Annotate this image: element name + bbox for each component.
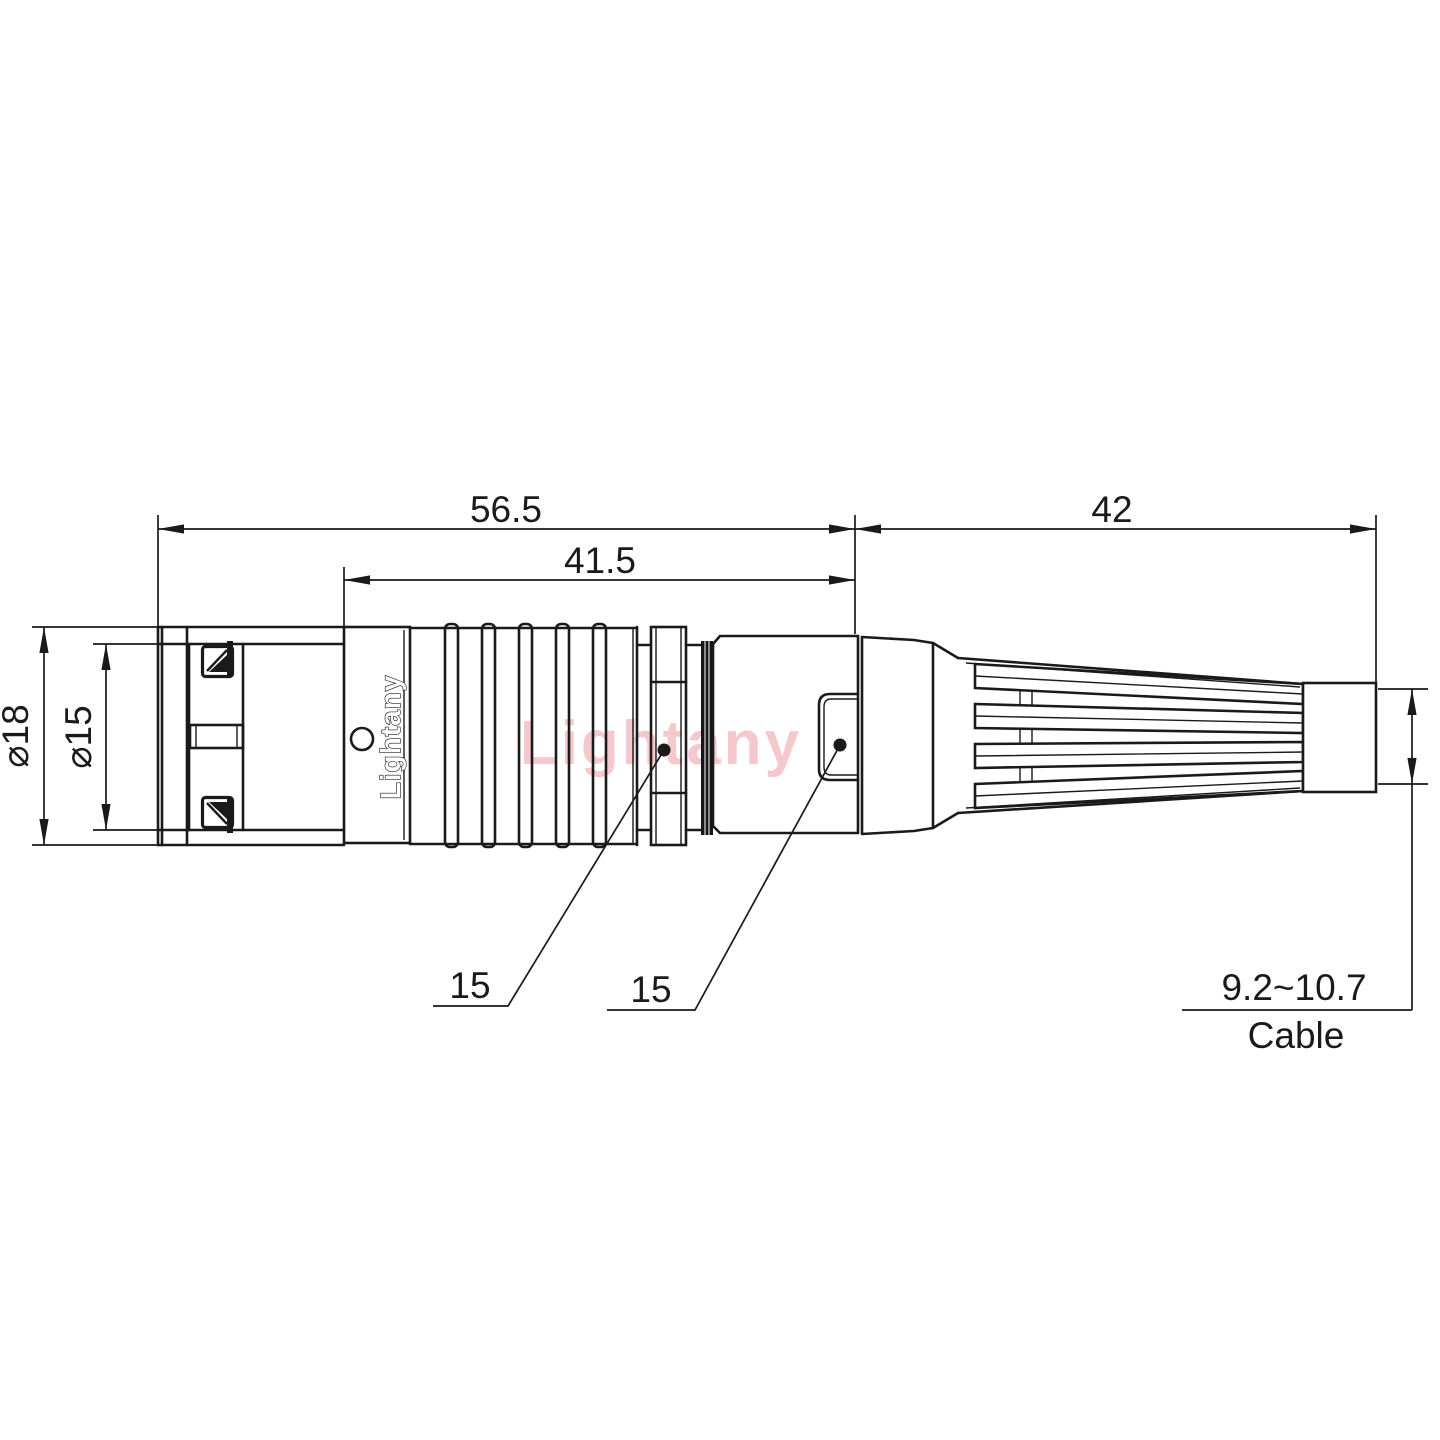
cable-range-text: 9.2~10.7 — [1221, 967, 1366, 1008]
leader-body-flat-text: 15 — [630, 969, 671, 1010]
watermark: Lightany — [520, 709, 802, 778]
dim-inner-diameter-text: ⌀15 — [58, 705, 99, 768]
watermark-text: Lightany — [520, 709, 802, 778]
technical-drawing-canvas: Lightany Lightany — [0, 0, 1440, 1440]
dim-boot-length-text: 42 — [1091, 489, 1132, 530]
cable-tip — [1303, 683, 1376, 792]
engraving-text: Lightany — [375, 675, 406, 800]
leader-nut-flat-text: 15 — [449, 965, 490, 1006]
seal-ring — [701, 641, 713, 835]
dim-front-length-text: 41.5 — [564, 540, 636, 581]
dim-outer-diameter-text: ⌀18 — [0, 704, 36, 767]
latch-tooth-bottom — [203, 798, 233, 834]
latch-tooth-top — [203, 641, 233, 677]
cable-label-text: Cable — [1248, 1015, 1345, 1056]
dim-total-length-text: 56.5 — [470, 489, 542, 530]
connector-drawing-svg: Lightany Lightany — [0, 0, 1440, 1440]
